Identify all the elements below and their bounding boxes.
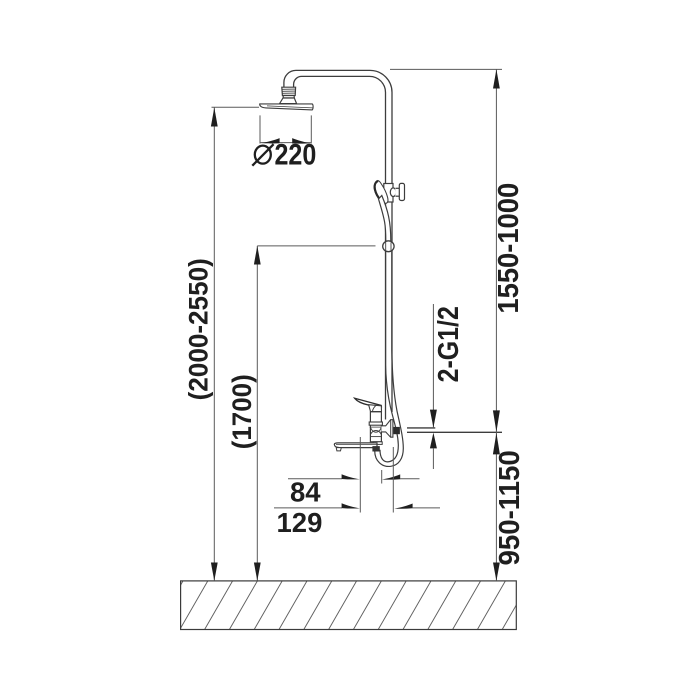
svg-text:84: 84 bbox=[290, 477, 321, 508]
svg-text:2-G1/2: 2-G1/2 bbox=[432, 306, 464, 382]
svg-text:(2000-2550): (2000-2550) bbox=[183, 258, 213, 400]
svg-text:129: 129 bbox=[277, 507, 323, 538]
svg-text:1550-1000: 1550-1000 bbox=[492, 183, 524, 314]
svg-text:950-1150: 950-1150 bbox=[494, 450, 525, 565]
svg-text:(1700): (1700) bbox=[227, 374, 257, 449]
svg-text:220: 220 bbox=[275, 138, 317, 171]
